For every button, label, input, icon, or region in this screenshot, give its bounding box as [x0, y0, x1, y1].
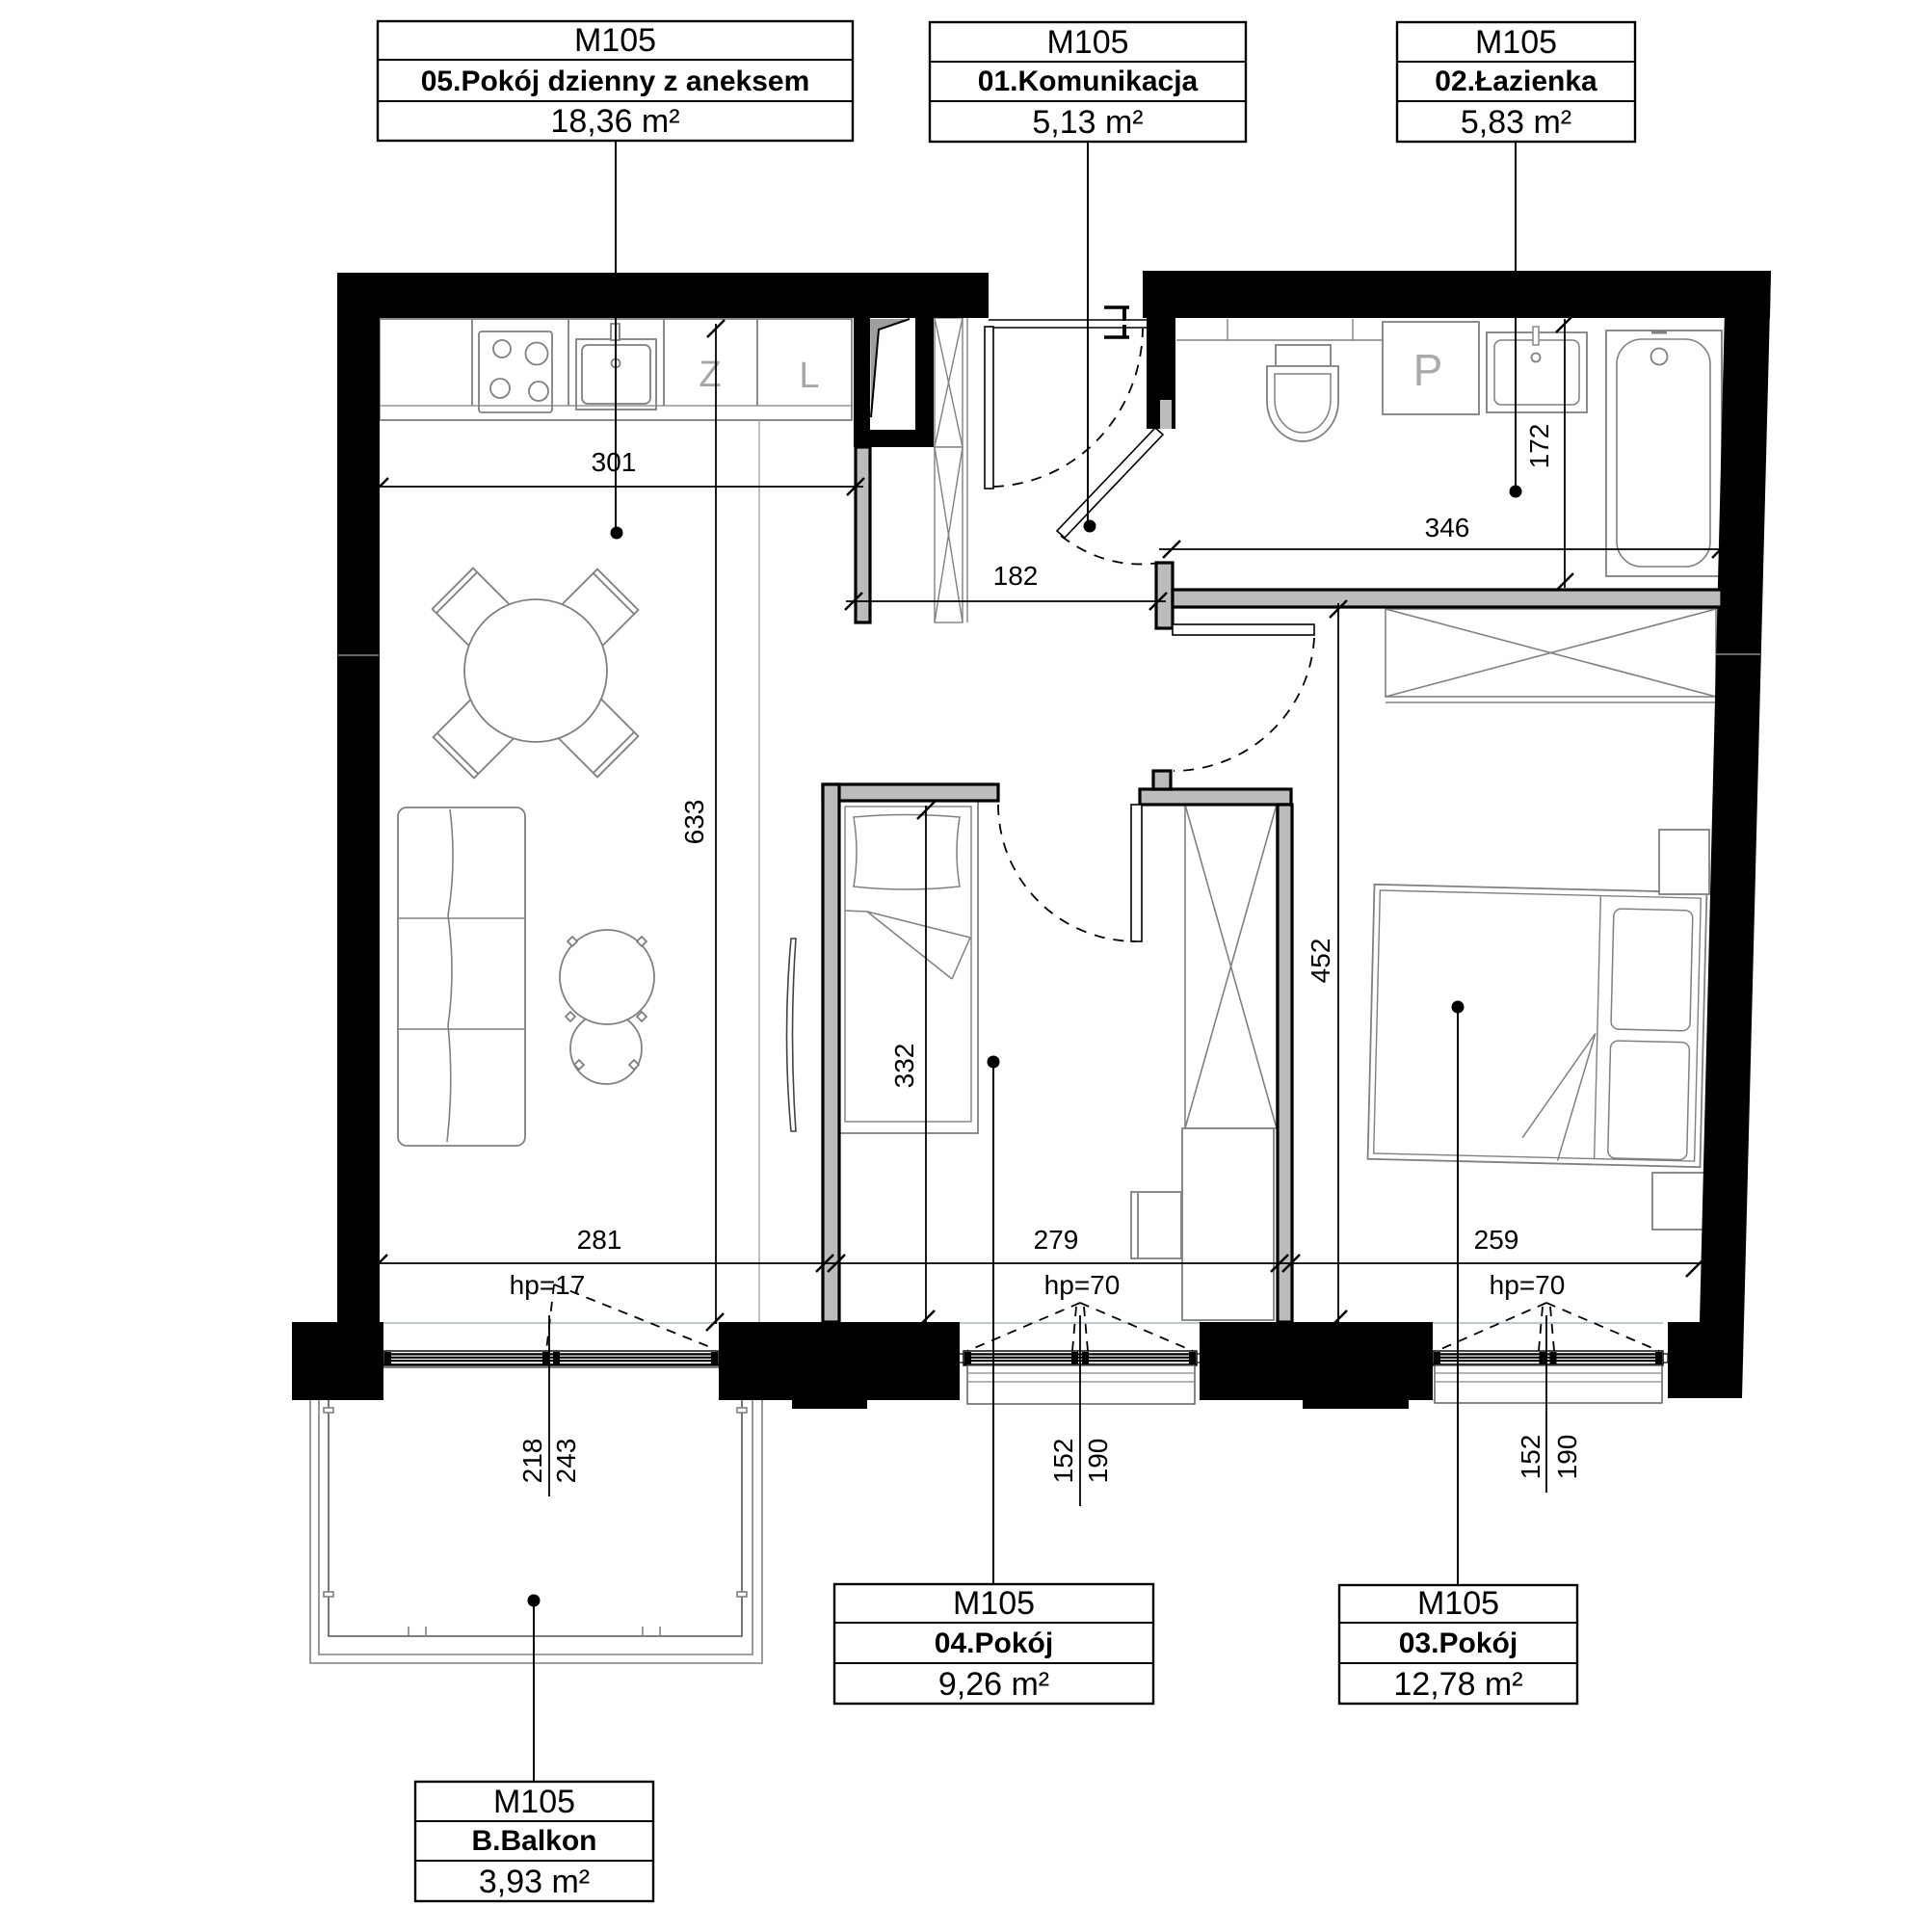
svg-text:12,78 m²: 12,78 m² — [1393, 1666, 1522, 1703]
svg-text:03.Pokój: 03.Pokój — [1399, 1628, 1518, 1659]
svg-text:M105: M105 — [1475, 24, 1557, 61]
svg-text:182: 182 — [993, 561, 1039, 591]
svg-text:04.Pokój: 04.Pokój — [935, 1628, 1053, 1659]
svg-text:02.Łazienka: 02.Łazienka — [1435, 66, 1597, 97]
svg-text:9,26 m²: 9,26 m² — [938, 1666, 1049, 1703]
svg-text:346: 346 — [1425, 513, 1470, 543]
svg-text:5,83 m²: 5,83 m² — [1461, 104, 1571, 141]
svg-text:279: 279 — [1034, 1225, 1079, 1255]
svg-text:190: 190 — [1083, 1439, 1113, 1484]
svg-text:M105: M105 — [953, 1585, 1035, 1622]
svg-text:332: 332 — [889, 1044, 919, 1089]
svg-text:218: 218 — [517, 1439, 547, 1484]
svg-text:301: 301 — [592, 447, 637, 477]
svg-text:hp=70: hp=70 — [1044, 1270, 1121, 1300]
svg-text:M105: M105 — [493, 1784, 575, 1820]
svg-text:18,36 m²: 18,36 m² — [550, 103, 679, 140]
svg-text:281: 281 — [577, 1225, 622, 1255]
svg-text:172: 172 — [1524, 424, 1554, 469]
svg-text:hp=17: hp=17 — [510, 1270, 586, 1300]
svg-text:M105: M105 — [1417, 1585, 1499, 1622]
svg-text:05.Pokój dzienny z aneksem: 05.Pokój dzienny z aneksem — [421, 66, 810, 97]
svg-text:452: 452 — [1306, 939, 1335, 984]
svg-text:01.Komunikacja: 01.Komunikacja — [978, 66, 1199, 97]
svg-text:152: 152 — [1048, 1439, 1078, 1484]
svg-text:259: 259 — [1474, 1225, 1519, 1255]
svg-text:152: 152 — [1516, 1435, 1545, 1480]
svg-text:243: 243 — [551, 1439, 581, 1484]
svg-text:M105: M105 — [1046, 24, 1128, 61]
svg-text:5,13 m²: 5,13 m² — [1032, 104, 1143, 141]
svg-text:hp=70: hp=70 — [1490, 1270, 1566, 1300]
svg-text:Z: Z — [699, 355, 721, 395]
svg-text:M105: M105 — [574, 22, 656, 59]
svg-text:B.Balkon: B.Balkon — [471, 1825, 596, 1857]
svg-text:L: L — [799, 356, 819, 396]
svg-text:P: P — [1413, 345, 1443, 395]
svg-text:3,93 m²: 3,93 m² — [479, 1864, 590, 1900]
svg-text:633: 633 — [679, 800, 709, 845]
svg-text:190: 190 — [1552, 1435, 1582, 1480]
